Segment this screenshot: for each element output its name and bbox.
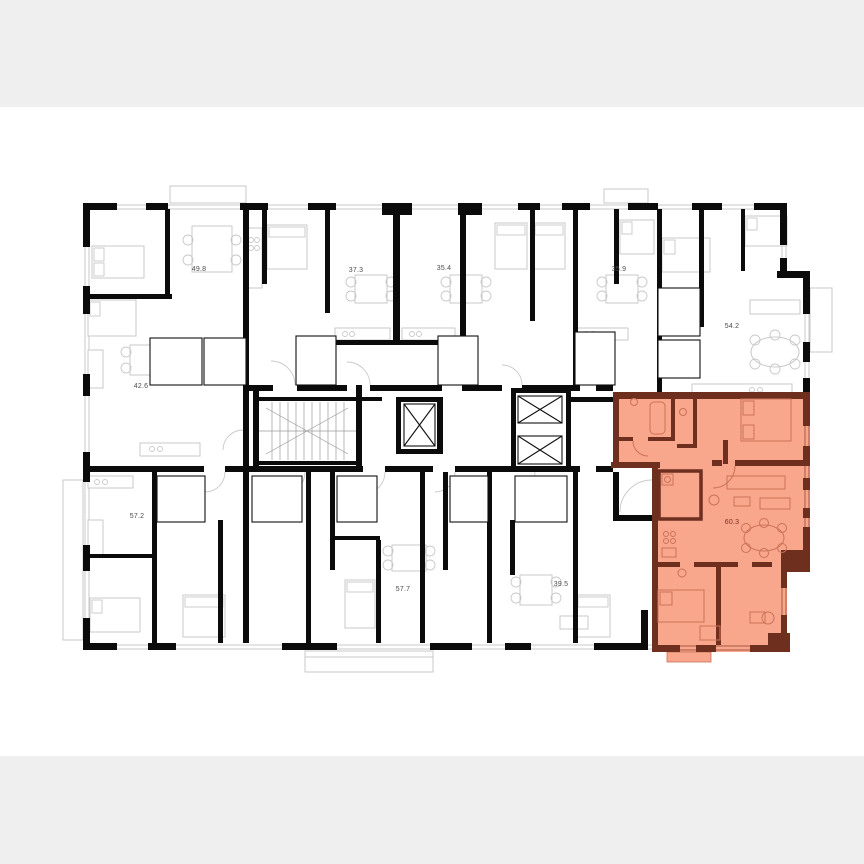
floor-plan-viewer: 49.8 37.3 35.4 35.9 54.2 42.6 57.2 57.7 … (0, 0, 864, 864)
door-arc (502, 365, 522, 385)
dining-table-icon (383, 545, 435, 571)
door-arc (347, 362, 370, 385)
unit-area-label: 37.3 (349, 267, 363, 274)
unit-area-label: 42.6 (134, 383, 148, 390)
door-arc (223, 430, 243, 450)
bed-icon (345, 580, 375, 628)
unit-area-label: 57.2 (130, 513, 144, 520)
bed-icon (533, 223, 565, 269)
bed-icon (267, 225, 307, 269)
unit-area-label: 54.2 (725, 323, 739, 330)
dining-table-icon (597, 275, 647, 303)
dining-table-icon (346, 275, 396, 303)
door-arc (271, 361, 295, 385)
floor-plan-image[interactable]: 49.8 37.3 35.4 35.9 54.2 42.6 57.2 57.7 … (0, 0, 864, 864)
door-arc (205, 472, 225, 492)
sofa-icon (88, 520, 103, 556)
unit-area-label: 39.5 (554, 581, 568, 588)
highlighted-unit-balcony (667, 652, 711, 662)
kitchen-icon (335, 328, 390, 340)
bed-icon (495, 223, 527, 269)
door-arc (620, 480, 652, 512)
unit-area-label: 57.7 (396, 586, 410, 593)
dining-table-icon (511, 575, 561, 605)
highlighted-unit-area-label: 60.3 (725, 519, 739, 526)
bed-icon (620, 220, 654, 254)
bed-icon (90, 598, 140, 632)
bed-icon (88, 300, 136, 336)
sofa-icon (750, 300, 800, 314)
bed-icon (92, 246, 144, 278)
unit-area-label: 49.8 (192, 266, 206, 273)
kitchen-icon (140, 443, 200, 456)
sofa-icon (88, 350, 103, 388)
dining-table-icon (750, 330, 800, 374)
kitchen-icon (88, 476, 133, 488)
staircase (259, 402, 356, 460)
unit-area-label: 35.9 (612, 266, 626, 273)
unit-area-label: 35.4 (437, 265, 451, 272)
